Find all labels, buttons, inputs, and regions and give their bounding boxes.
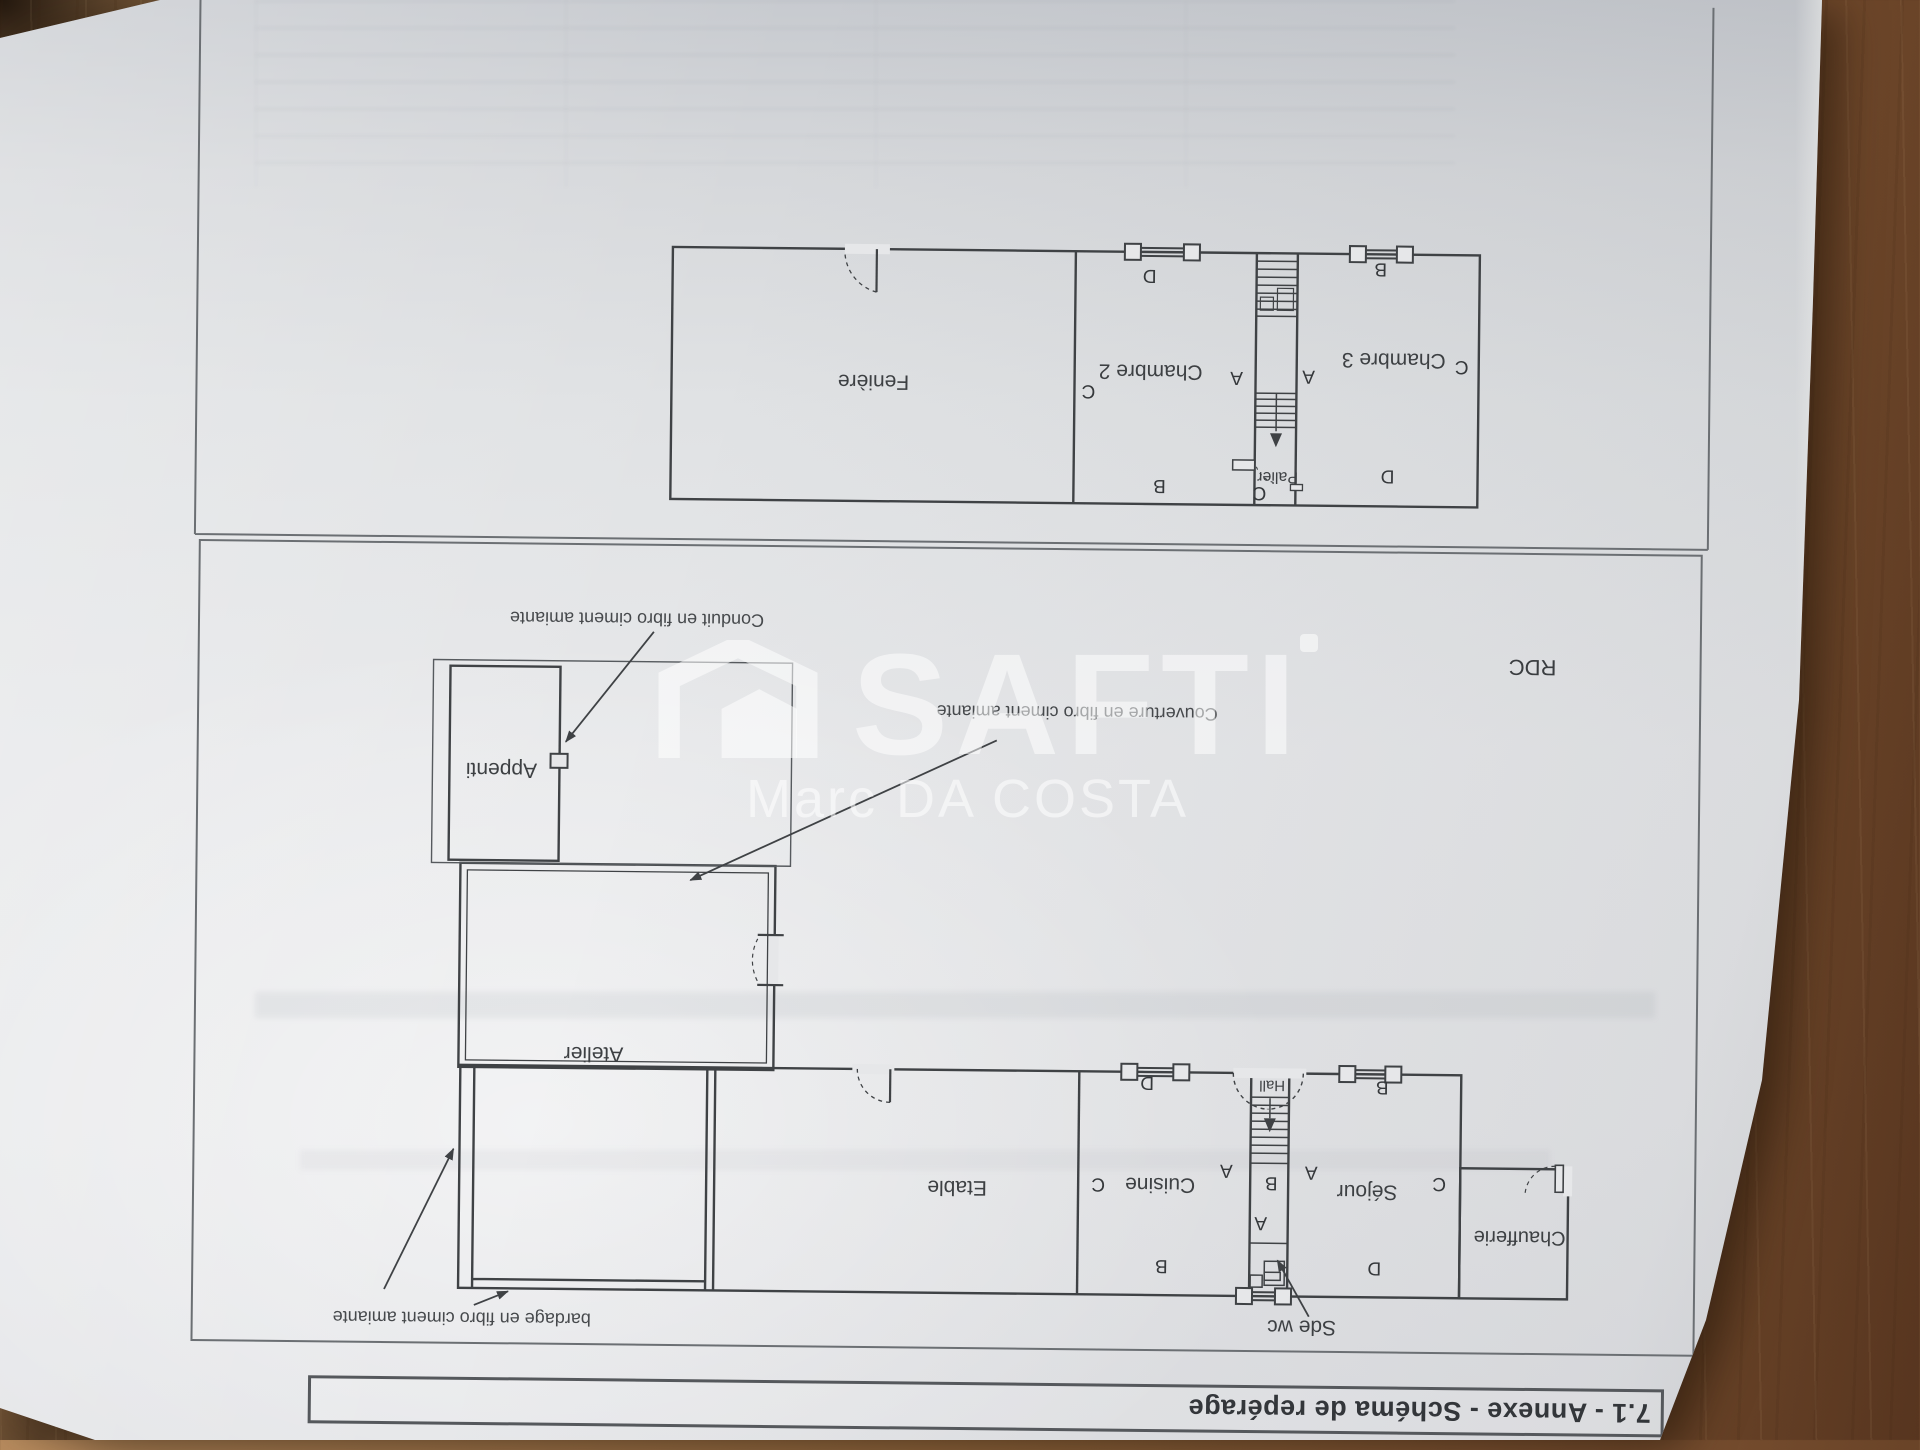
material-marker-a: A (1302, 365, 1315, 387)
material-marker-d: D (1367, 1256, 1381, 1278)
room-label-sde-wc: Sde wc (1267, 1314, 1336, 1339)
material-marker-b: B (1265, 1171, 1278, 1193)
room-label-fenière: Fenière (838, 369, 909, 394)
material-marker-c: C (1432, 1172, 1446, 1194)
material-marker-a: A (1254, 1211, 1267, 1233)
material-marker-c: C (1081, 379, 1095, 401)
material-marker-c: C (1455, 355, 1469, 377)
room-label-cuisine: Cuisine (1125, 1172, 1195, 1197)
etage-plan-walls (670, 247, 1480, 507)
asbestos-annotation-3: bardage en fibro ciment amiante (333, 1306, 591, 1330)
room-label-séjour: Séjour (1337, 1179, 1398, 1204)
atelier-walls (458, 863, 784, 1070)
room-label-appenti: Appenti (466, 757, 537, 782)
material-marker-d: D (1143, 264, 1157, 286)
floor-label-rdc: RDC (1509, 654, 1557, 680)
material-marker-d: D (1140, 1071, 1154, 1093)
paper-sheet: 7.1 - Annexe - Schéma de repérage (0, 0, 1920, 1440)
material-marker-a: A (1305, 1161, 1318, 1183)
material-marker-a: A (1220, 1159, 1233, 1181)
paper-sheet-wrapper: 7.1 - Annexe - Schéma de repérage (0, 0, 1920, 1440)
material-marker-b: B (1155, 1254, 1168, 1276)
room-label-atelier: Atelier (564, 1041, 624, 1066)
etage-stairs (1255, 261, 1298, 447)
rdc-plan-walls (458, 1065, 1569, 1300)
room-label-chambre-2: Chambre 2 (1099, 358, 1203, 383)
material-marker-b: B (1153, 474, 1166, 496)
asbestos-annotation-1: Conduit en fibro ciment amiante (510, 607, 764, 631)
annotation-arrows (384, 629, 1316, 1317)
room-label-chaufferie: Chaufferie (1474, 1225, 1566, 1249)
room-label-hall: Hall (1259, 1077, 1285, 1094)
floorplan-linework (0, 0, 1920, 1450)
material-marker-a: A (1230, 366, 1243, 388)
room-label-chambre-3: Chambre 3 (1342, 347, 1446, 372)
photo-of-floorplan-document: { "title_bar": { "text": "7.1 - Annexe -… (0, 0, 1920, 1440)
material-marker-c: C (1252, 481, 1266, 503)
room-label-etable: Etable (927, 1175, 987, 1200)
material-marker-b: B (1374, 257, 1387, 279)
page-frames (186, 0, 1713, 1356)
asbestos-annotation-2: Couverture en fibro ciment amiante (936, 700, 1217, 724)
material-marker-d: D (1381, 464, 1395, 486)
material-marker-b: B (1376, 1075, 1389, 1097)
material-marker-c: C (1091, 1172, 1105, 1194)
document-content-rotated: 7.1 - Annexe - Schéma de repérage (0, 0, 1920, 1450)
